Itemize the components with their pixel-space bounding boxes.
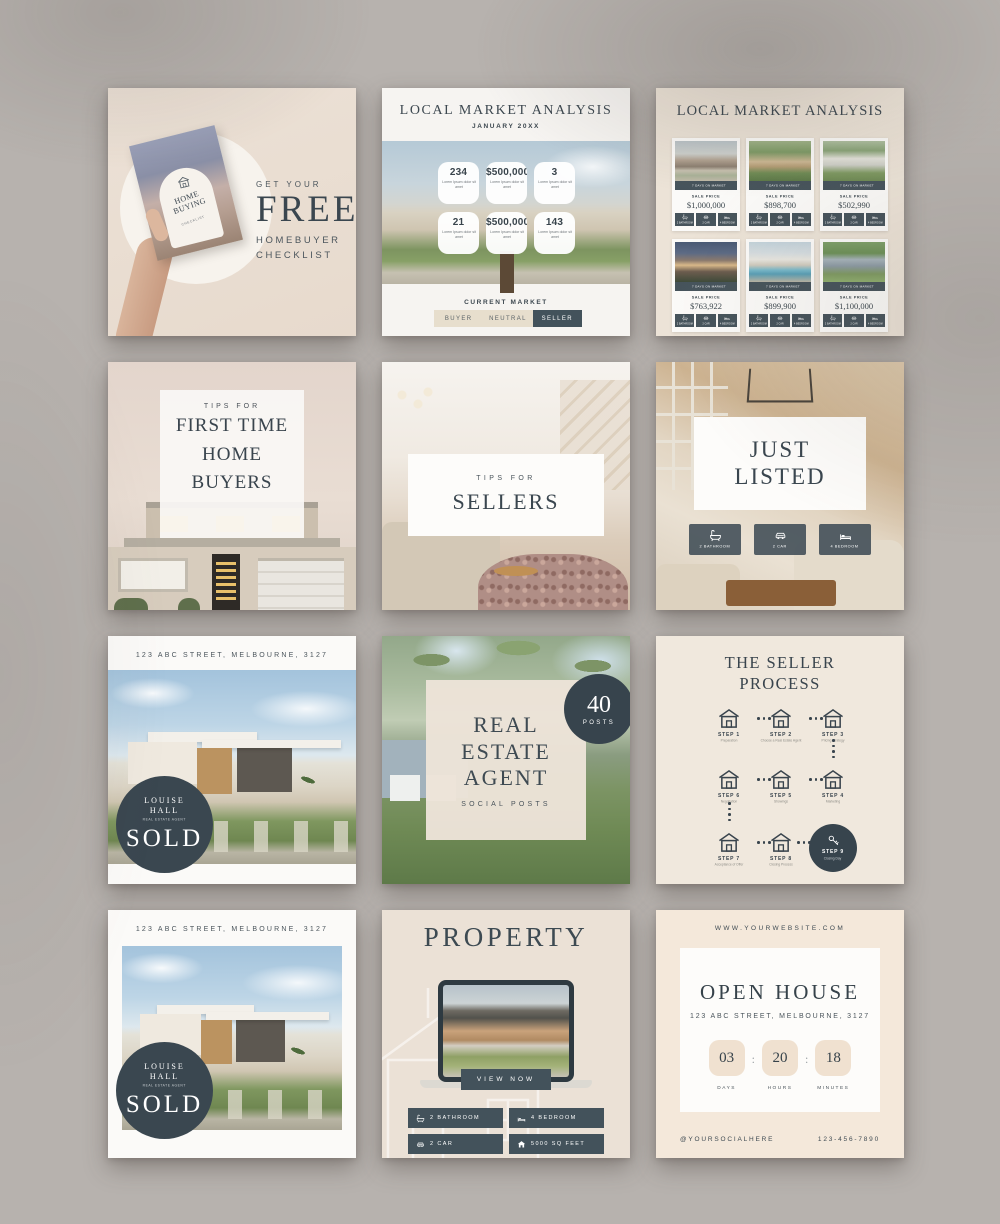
property-address: 123 ABC STREET, MELBOURNE, 3127	[680, 1013, 880, 1020]
feature-car: 2 CAR	[696, 314, 715, 327]
house-outline-icon	[769, 708, 793, 729]
stat-card: 234Lorem Ipsum dolor sit amet	[438, 162, 479, 204]
listing-cards: 7 DAYS ON MARKET SALE PRICE $1,000,000 2…	[672, 138, 888, 332]
house-outline-icon	[717, 708, 741, 729]
feature-bathroom: 2 BATHROOM	[823, 314, 842, 327]
bath-icon	[709, 529, 722, 542]
agent-name-line1: LOUISE	[144, 796, 184, 805]
feature-car: 2 CAR	[844, 213, 863, 226]
property-address: 123 ABC STREET, MELBOURNE, 3127	[108, 652, 356, 659]
title-line2: PROCESS	[656, 674, 904, 695]
stat-value: 21	[438, 217, 479, 228]
stat-caption: Lorem Ipsum dolor sit amet	[438, 230, 479, 240]
listing-photo	[675, 242, 737, 282]
dots-connector	[757, 778, 771, 781]
sale-price: $1,100,000	[823, 301, 885, 311]
eyebrow-text: GET YOUR	[256, 180, 356, 189]
post-sold-variant[interactable]: 123 ABC STREET, MELBOURNE, 3127 LOUISEHA…	[108, 910, 356, 1158]
house-icon	[517, 1140, 526, 1149]
chandelier-photo	[394, 386, 434, 416]
headline-line1: JUST	[750, 437, 810, 463]
post-first-time-buyers[interactable]: TIPS FOR FIRST TIME HOME BUYERS	[108, 362, 356, 610]
subheadline: SOCIAL POSTS	[461, 801, 551, 808]
bath-icon	[416, 1114, 425, 1123]
dots-connector	[728, 802, 731, 821]
bed-icon	[798, 315, 804, 321]
car-icon	[703, 214, 709, 220]
process-step: STEP 1Preparation	[701, 708, 757, 747]
sale-price-label: SALE PRICE	[837, 296, 871, 300]
car-icon	[703, 315, 709, 321]
listing-photo	[823, 141, 885, 181]
sale-price-label: SALE PRICE	[689, 296, 723, 300]
stat-caption: Lorem Ipsum dolor sit amet	[534, 180, 575, 190]
post-seller-process[interactable]: THE SELLER PROCESS STEP 1Preparation STE…	[656, 636, 904, 884]
dots-connector	[832, 739, 835, 758]
listing-photo	[749, 141, 811, 181]
eyebrow-text: TIPS FOR	[476, 475, 535, 482]
days-on-market: 7 DAYS ON MARKET	[840, 285, 874, 288]
post-market-analysis-stats[interactable]: LOCAL MARKET ANALYSIS JANUARY 20XX 234Lo…	[382, 88, 630, 336]
sold-label: SOLD	[126, 825, 203, 853]
headline: FREE	[256, 191, 356, 230]
colon-separator: :	[805, 1052, 808, 1067]
sale-price: $502,990	[823, 200, 885, 210]
feature-car: 2 CAR	[770, 213, 789, 226]
car-icon	[777, 214, 783, 220]
subline-1: HOMEBUYER	[256, 234, 356, 249]
sold-badge: LOUISEHALL REAL ESTATE AGENT SOLD	[116, 1042, 213, 1139]
house-outline-icon	[821, 708, 845, 729]
bath-icon	[682, 214, 688, 220]
process-step: STEP 2Choose a Real Estate Agent	[753, 708, 809, 747]
listing-card: 7 DAYS ON MARKET SALE PRICE $898,700 2 B…	[746, 138, 814, 231]
post-title: OPEN HOUSE	[680, 980, 880, 1005]
house-outline-icon	[769, 769, 793, 790]
listing-card: 7 DAYS ON MARKET SALE PRICE $502,990 2 B…	[820, 138, 888, 231]
stat-cards: 234Lorem Ipsum dolor sit amet $500,000Lo…	[438, 162, 575, 254]
feature-car: 2 CAR	[844, 314, 863, 327]
dots-connector	[809, 778, 823, 781]
stat-value: $500,000	[486, 167, 527, 178]
bath-icon	[830, 214, 836, 220]
posts-count: 40	[587, 693, 611, 717]
feature-bedroom: 4 BEDROOM	[866, 314, 885, 327]
badge-sqfeet: 5000 SQ FEET	[509, 1134, 604, 1154]
post-subtitle: JANUARY 20XX	[382, 123, 630, 130]
toggle-buyer[interactable]: BUYER	[434, 310, 483, 327]
headline-line3: BUYERS	[160, 470, 304, 496]
phone-number: 123-456-7890	[818, 1136, 880, 1143]
headline-line1: FIRST TIME	[160, 413, 304, 439]
bed-icon	[517, 1114, 526, 1123]
house-outline-icon	[769, 832, 793, 853]
listing-card: 7 DAYS ON MARKET SALE PRICE $1,100,000 2…	[820, 239, 888, 332]
post-cover-social-posts[interactable]: REAL ESTATE AGENT SOCIAL POSTS 40 POSTS	[382, 636, 630, 884]
feature-bathroom: 2 BATHROOM	[749, 213, 768, 226]
post-title: LOCAL MARKET ANALYSIS	[656, 103, 904, 120]
house-photo	[443, 985, 569, 1077]
sale-price: $1,000,000	[675, 200, 737, 210]
countdown-days: 03DAYS	[709, 1040, 745, 1091]
bath-icon	[830, 315, 836, 321]
car-icon	[416, 1140, 425, 1149]
stat-card: $500,000Lorem Ipsum dolor sit amet	[486, 212, 527, 254]
listing-card: 7 DAYS ON MARKET SALE PRICE $899,900 2 B…	[746, 239, 814, 332]
stat-card: 3Lorem Ipsum dolor sit amet	[534, 162, 575, 204]
bed-icon	[724, 315, 730, 321]
dots-connector	[757, 841, 771, 844]
feature-bathroom: 2 BATHROOM	[823, 213, 842, 226]
listing-photo	[675, 141, 737, 181]
countdown-minutes: 18MINUTES	[815, 1040, 851, 1091]
bath-icon	[756, 214, 762, 220]
car-icon	[851, 315, 857, 321]
countdown: 03DAYS : 20HOURS : 18MINUTES	[680, 1040, 880, 1091]
badge-car: 2 CAR	[754, 524, 806, 555]
stat-card: 143Lorem Ipsum dolor sit amet	[534, 212, 575, 254]
post-title: PROPERTY	[382, 922, 630, 953]
headline-line1: REAL	[473, 712, 538, 738]
bed-icon	[872, 315, 878, 321]
car-icon	[774, 529, 787, 542]
card-line3: CHECKLIST	[181, 215, 205, 226]
feature-bedroom: 4 BEDROOM	[792, 213, 811, 226]
post-market-analysis-listings[interactable]: LOCAL MARKET ANALYSIS 7 DAYS ON MARKET S…	[656, 88, 904, 336]
bed-icon	[839, 529, 852, 542]
listing-photo	[823, 242, 885, 282]
bed-icon	[872, 214, 878, 220]
table-photo	[494, 566, 538, 576]
post-free-checklist[interactable]: HOME BUYING CHECKLIST GET YOUR FREE HOME…	[108, 88, 356, 336]
subline-2: CHECKLIST	[256, 249, 356, 264]
days-on-market: 7 DAYS ON MARKET	[766, 184, 800, 187]
feature-bedroom: 4 BEDROOM	[718, 213, 737, 226]
feature-car: 2 CAR	[696, 213, 715, 226]
agent-name-line2: HALL	[144, 1072, 184, 1081]
template-grid: HOME BUYING CHECKLIST GET YOUR FREE HOME…	[108, 88, 904, 1158]
house-outline-icon	[821, 769, 845, 790]
toggle-neutral[interactable]: NEUTRAL	[483, 310, 532, 327]
agent-role: REAL ESTATE AGENT	[143, 818, 186, 821]
post-tips-for-sellers[interactable]: TIPS FOR SELLERS	[382, 362, 630, 610]
process-step: STEP 8Closing Process	[753, 832, 809, 871]
badge-bedroom: 4 BEDROOM	[509, 1108, 604, 1128]
laptop-mockup	[438, 980, 574, 1082]
stat-value: 143	[534, 217, 575, 228]
home-logo-icon	[176, 175, 192, 191]
sale-price: $899,900	[749, 301, 811, 311]
bath-icon	[756, 315, 762, 321]
chandelier-photo	[747, 369, 814, 403]
feature-bedroom: 4 BEDROOM	[866, 213, 885, 226]
agent-name-line2: HALL	[144, 806, 184, 815]
property-address: 123 ABC STREET, MELBOURNE, 3127	[108, 926, 356, 933]
stat-caption: Lorem Ipsum dolor sit amet	[486, 230, 527, 240]
listing-card: 7 DAYS ON MARKET SALE PRICE $1,000,000 2…	[672, 138, 740, 231]
headline-line2: LISTED	[734, 464, 825, 490]
headline-box: TIPS FOR FIRST TIME HOME BUYERS	[160, 390, 304, 538]
headline-box: JUST LISTED	[694, 417, 866, 510]
sale-price: $763,922	[675, 301, 737, 311]
toggle-seller[interactable]: SELLER	[533, 310, 582, 327]
post-property-listing[interactable]: PROPERTY VIEW NOW 2 BATHROOM 4 BEDROOM 2…	[382, 910, 630, 1158]
sale-price-label: SALE PRICE	[763, 296, 797, 300]
sale-price: $898,700	[749, 200, 811, 210]
stat-card: $500,000Lorem Ipsum dolor sit amet	[486, 162, 527, 204]
stat-value: $500,000	[486, 217, 527, 228]
days-on-market: 7 DAYS ON MARKET	[840, 184, 874, 187]
posts-count-badge: 40 POSTS	[564, 674, 630, 744]
days-on-market: 7 DAYS ON MARKET	[766, 285, 800, 288]
listing-card: 7 DAYS ON MARKET SALE PRICE $763,922 2 B…	[672, 239, 740, 332]
headline-line2: ESTATE	[461, 739, 551, 765]
sale-price-label: SALE PRICE	[763, 195, 797, 199]
house-outline-icon	[717, 769, 741, 790]
house-outline-icon	[717, 832, 741, 853]
agent-name-line1: LOUISE	[144, 1062, 184, 1071]
post-just-listed[interactable]: JUST LISTED 2 BATHROOM 2 CAR 4 BEDROOM	[656, 362, 904, 610]
coffee-table-photo	[726, 580, 836, 606]
title-line1: THE SELLER	[656, 653, 904, 674]
headline-line3: AGENT	[464, 765, 549, 791]
bath-icon	[682, 315, 688, 321]
stat-card: 21Lorem Ipsum dolor sit amet	[438, 212, 479, 254]
social-handle: @YOURSOCIALHERE	[680, 1136, 774, 1143]
sale-price-label: SALE PRICE	[689, 195, 723, 199]
feature-bathroom: 2 BATHROOM	[675, 314, 694, 327]
stat-caption: Lorem Ipsum dolor sit amet	[438, 180, 479, 190]
badge-car: 2 CAR	[408, 1134, 503, 1154]
feature-bathroom: 2 BATHROOM	[675, 213, 694, 226]
post-title: LOCAL MARKET ANALYSIS	[382, 103, 630, 119]
dots-connector	[809, 717, 823, 720]
car-icon	[777, 315, 783, 321]
current-market-label: CURRENT MARKET	[382, 299, 630, 306]
headline-box: REAL ESTATE AGENT SOCIAL POSTS	[426, 680, 586, 840]
listing-photo	[749, 242, 811, 282]
feature-car: 2 CAR	[770, 314, 789, 327]
market-toggle: BUYER NEUTRAL SELLER	[434, 310, 582, 327]
dots-connector	[797, 841, 811, 844]
countdown-hours: 20HOURS	[762, 1040, 798, 1091]
bed-icon	[724, 214, 730, 220]
posts-label: POSTS	[583, 720, 615, 726]
post-open-house[interactable]: WWW.YOURWEBSITE.COM OPEN HOUSE 123 ABC S…	[656, 910, 904, 1158]
colon-separator: :	[752, 1052, 755, 1067]
process-step: STEP 4Marketing	[805, 769, 861, 808]
headline-box: TIPS FOR SELLERS	[408, 454, 604, 536]
headline: SELLERS	[453, 489, 560, 515]
stat-value: 234	[438, 167, 479, 178]
bed-icon	[798, 214, 804, 220]
sold-badge: LOUISEHALL REAL ESTATE AGENT SOLD	[116, 776, 213, 873]
car-icon	[851, 214, 857, 220]
eyebrow-text: TIPS FOR	[160, 403, 304, 410]
agent-role: REAL ESTATE AGENT	[143, 1084, 186, 1087]
days-on-market: 7 DAYS ON MARKET	[692, 184, 726, 187]
days-on-market: 7 DAYS ON MARKET	[692, 285, 726, 288]
sale-price-label: SALE PRICE	[837, 195, 871, 199]
feature-bedroom: 4 BEDROOM	[792, 314, 811, 327]
rug-photo	[478, 554, 628, 610]
badge-bedroom: 4 BEDROOM	[819, 524, 871, 555]
badge-bathroom: 2 BATHROOM	[408, 1108, 503, 1128]
stat-caption: Lorem Ipsum dolor sit amet	[534, 230, 575, 240]
process-step: STEP 7Acceptance of Offer	[701, 832, 757, 871]
countdown-card: OPEN HOUSE 123 ABC STREET, MELBOURNE, 31…	[680, 948, 880, 1112]
dots-connector	[757, 717, 771, 720]
post-sold[interactable]: 123 ABC STREET, MELBOURNE, 3127 LOUISEHA…	[108, 636, 356, 884]
stat-caption: Lorem Ipsum dolor sit amet	[486, 180, 527, 190]
sold-label: SOLD	[126, 1091, 203, 1119]
headline-line2: HOME	[160, 442, 304, 468]
feature-bathroom: 2 BATHROOM	[749, 314, 768, 327]
website-url: WWW.YOURWEBSITE.COM	[656, 925, 904, 932]
badge-bathroom: 2 BATHROOM	[689, 524, 741, 555]
process-step: STEP 5Showings	[753, 769, 809, 808]
key-icon	[827, 834, 840, 847]
process-step-final: STEP 9Closing Day	[809, 824, 857, 872]
feature-bedroom: 4 BEDROOM	[718, 314, 737, 327]
view-now-button[interactable]: VIEW NOW	[461, 1069, 551, 1090]
stat-value: 3	[534, 167, 575, 178]
